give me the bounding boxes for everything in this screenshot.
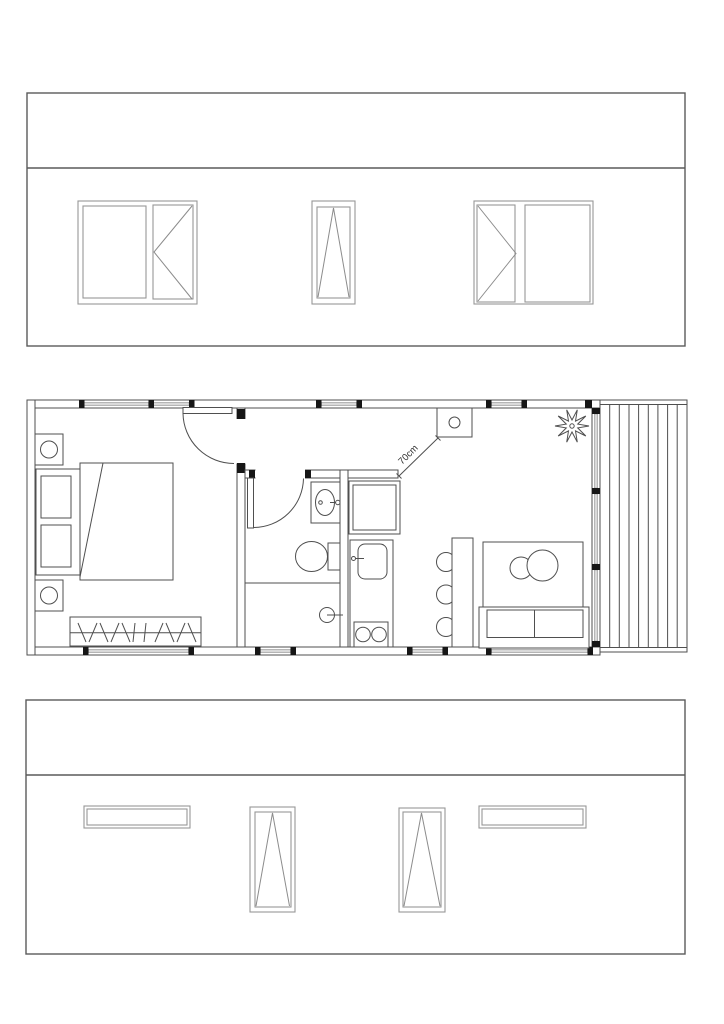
elevation-window-strip-right (479, 806, 586, 828)
deck-planks (610, 405, 678, 648)
shower-drain (320, 608, 344, 623)
bedroom-door (183, 408, 234, 464)
plant-leaves (555, 410, 589, 442)
living-area (437, 538, 590, 648)
coffee-table-large (527, 550, 558, 581)
top-elevation (27, 93, 685, 346)
elevation-outline (27, 93, 685, 346)
door-leaf (248, 478, 254, 528)
floor-plan: 70cm (27, 400, 687, 655)
bathroom-fixtures (245, 482, 343, 623)
deck (600, 400, 687, 652)
nightstand-top (35, 434, 63, 465)
elevation-window-tilt-tall-1 (250, 807, 295, 912)
tilt-opening-symbol (318, 208, 349, 297)
bathroom-east-partition (340, 470, 348, 647)
bedroom-furniture (35, 434, 201, 646)
toilet (296, 542, 341, 572)
elevation-window-tilt-tall-2 (399, 808, 445, 912)
headboard (36, 469, 80, 575)
bowl (296, 542, 328, 572)
mattress (80, 463, 173, 580)
tilt-opening-symbol (404, 813, 440, 906)
dining-set (437, 538, 474, 647)
nightstand-bottom (35, 580, 63, 611)
bathroom-door (248, 478, 304, 528)
casement-opening-symbol (154, 206, 192, 299)
elevation-window-tilt-middle (312, 201, 355, 304)
door-swing-arc (254, 479, 304, 528)
potted-plant (555, 410, 589, 442)
elevation-window-double-casement-left (78, 201, 197, 304)
door-swing-arc (183, 414, 234, 464)
sofa (479, 607, 589, 648)
passage-dimension: 70cm (396, 436, 440, 479)
drawing-canvas: 70cm (0, 0, 724, 1024)
cistern (328, 543, 340, 570)
double-bed (36, 463, 173, 580)
door-leaf (183, 408, 232, 414)
elevation-window-strip-left (84, 806, 190, 828)
west-wall (27, 400, 35, 655)
passage-dimension-label: 70cm (396, 443, 420, 467)
casement-opening-symbol (478, 206, 516, 301)
elevation-window-double-casement-right (474, 201, 593, 304)
wardrobe (70, 617, 201, 646)
tilt-opening-symbol (256, 813, 290, 906)
architectural-drawing-sheet: 70cm (0, 0, 724, 1024)
washbasin (311, 482, 340, 523)
bottom-elevation (26, 700, 685, 954)
kitchen (349, 481, 400, 647)
refrigerator (349, 481, 400, 534)
corner-stove-unit (437, 408, 472, 437)
dining-table (452, 538, 473, 647)
